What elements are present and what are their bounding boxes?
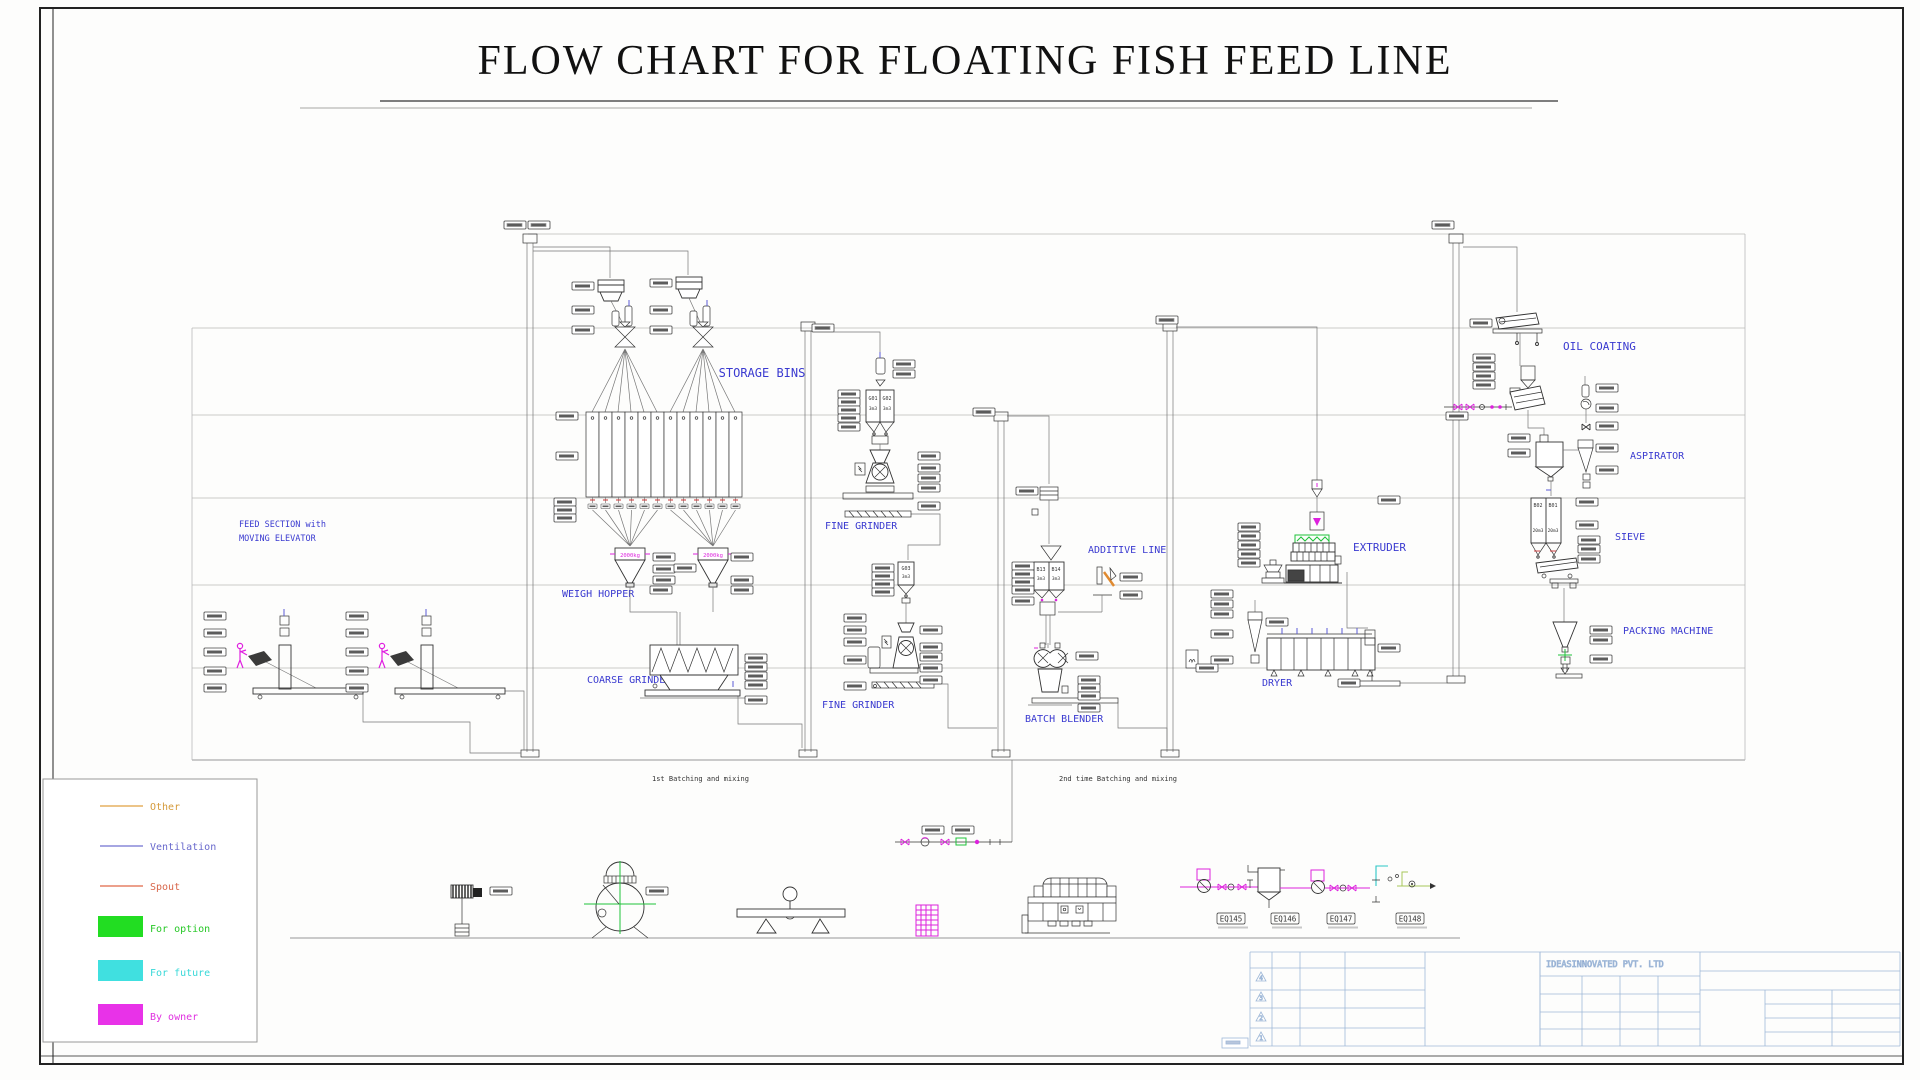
feed-section: FEED SECTION with MOVING ELEVATOR — [204, 520, 505, 699]
grinder-machine-2 — [868, 623, 919, 673]
eq147-label: EQ147 — [1330, 915, 1353, 924]
feed-station-b — [346, 609, 505, 699]
liquid-dosing-piping — [895, 826, 1012, 846]
fine-grinder-lower-section: FINE GRINDER G03 3m3 — [822, 562, 942, 711]
dryer-machine — [1267, 628, 1375, 676]
packing-section: PACKING MACHINE — [1553, 622, 1713, 678]
additive-line-section: ADDITIVE LINE B13 B14 3m3 3m3 — [1012, 487, 1166, 645]
owner-supplied-block — [916, 905, 938, 936]
platform-scale — [737, 887, 845, 933]
dryer-discharge-conveyor — [1358, 670, 1400, 686]
batch-blender-machine — [1028, 643, 1118, 705]
rev-1: 1 — [1259, 1035, 1263, 1042]
dryer-label: DRYER — [1262, 678, 1293, 689]
option-line — [1397, 872, 1436, 889]
bin-b14-label: B14 — [1051, 567, 1060, 573]
vibrating-sieve — [1536, 558, 1578, 588]
extruder-section: EXTRUDER — [1238, 480, 1406, 628]
coarse-grinder-section: COARSE GRINDER — [587, 645, 767, 704]
bin-discharges — [588, 497, 740, 546]
legend-swatch-owner — [98, 1004, 143, 1025]
hand-additive-station — [1058, 567, 1116, 612]
title-block: 4 3 2 1 IDEASINNOVATED PVT. LTD — [1222, 952, 1900, 1048]
rev-3: 3 — [1259, 995, 1263, 1002]
skid-equipment-labels: EQ145 EQ146 EQ147 EQ148 — [1217, 913, 1427, 929]
distribution-fan-lines — [592, 349, 735, 412]
eq148-label: EQ148 — [1399, 915, 1422, 924]
oil-dosing-skid: EQ145 EQ146 EQ147 EQ148 — [1180, 865, 1436, 929]
screw-conveyor-1 — [845, 511, 911, 517]
surge-bin — [1536, 435, 1563, 481]
oil-coater — [1510, 366, 1545, 410]
batch-blender-label: BATCH BLENDER — [1025, 714, 1104, 725]
bin-g01-label: G01 — [868, 396, 877, 402]
legend-label-owner: By owner — [150, 1012, 198, 1023]
eq146-label: EQ146 — [1274, 915, 1297, 924]
oil-dosing-line — [1444, 404, 1512, 420]
page-title: FLOW CHART FOR FLOATING FISH FEED LINE — [478, 38, 1453, 84]
aspirator-assembly — [1578, 376, 1593, 488]
storage-bin-cells — [586, 412, 742, 497]
bin-g03-label: G03 — [901, 566, 910, 572]
packing-machine — [1553, 622, 1582, 678]
legend-swatch-future — [98, 960, 143, 981]
coating-drum-top — [1493, 313, 1542, 346]
intake-hopper — [390, 651, 414, 666]
oil-coating-label: OIL COATING — [1563, 340, 1636, 353]
extruder-hood — [1262, 560, 1284, 583]
fine-grinder-lower-label: FINE GRINDER — [822, 700, 895, 711]
bin-b02-volume: 20m3 — [1533, 528, 1544, 534]
sieve-section: SIEVE B02 B01 20m3 20m3 — [1531, 498, 1645, 622]
title-underline — [300, 101, 1558, 108]
packing-machine-label: PACKING MACHINE — [1623, 626, 1713, 637]
bin-b13-volume: 3m3 — [1037, 576, 1045, 582]
drawing-sheet: FLOW CHART FOR FLOATING FISH FEED LINE — [0, 0, 1920, 1080]
bin-b14-volume: 3m3 — [1052, 576, 1060, 582]
rev-2: 2 — [1259, 1015, 1263, 1022]
storage-bins-section: STORAGE BINS — [554, 277, 805, 546]
weigh-hopper-section: WEIGH HOPPER 2000kg 2000kg — [562, 548, 753, 645]
coarse-grinder-label: COARSE GRINDER — [587, 675, 672, 686]
operator-figure — [379, 643, 389, 668]
dryer-section: DRYER — [1186, 590, 1400, 689]
drum-cleaner-2 — [676, 277, 702, 298]
extruder-feed-cyclone — [1312, 480, 1322, 512]
drum-cleaner-1 — [598, 280, 624, 301]
dryer-cyclone — [1248, 600, 1262, 663]
bin-g02-label: G02 — [882, 396, 891, 402]
batch-blender-section: BATCH BLENDER — [1025, 643, 1118, 725]
bin-b01-label: B01 — [1548, 503, 1557, 509]
extruder-machine — [1284, 512, 1342, 583]
legend-label-other: Other — [150, 802, 180, 813]
right-cells — [1700, 952, 1900, 1046]
bin-g02-volume: 3m3 — [883, 406, 891, 412]
legend-label-spout: Spout — [150, 882, 180, 893]
legend: Other Ventilation Spout For option For f… — [43, 779, 257, 1042]
oil-coating-section: OIL COATING — [1444, 313, 1636, 435]
future-line — [1376, 866, 1388, 886]
round-boiler — [584, 861, 668, 938]
company-cell: IDEASINNOVATED PVT. LTD — [1540, 952, 1700, 1046]
eq145-label: EQ145 — [1220, 915, 1243, 924]
weigh-setpoint-b: 2000kg — [703, 553, 723, 559]
company-name: IDEASINNOVATED PVT. LTD — [1546, 960, 1664, 970]
bin-g01-volume: 3m3 — [869, 406, 877, 412]
revision-table: 4 3 2 1 — [1222, 952, 1425, 1048]
weigh-setpoint-a: 2000kg — [620, 553, 640, 559]
zone-1st-batching: 1st Batching and mixing — [652, 775, 749, 783]
rev-4: 4 — [1259, 975, 1263, 982]
motor-unit — [451, 885, 512, 936]
weigh-discharge-piping — [630, 587, 713, 645]
coarse-grinder-machine — [640, 645, 745, 698]
bottom-machine-row — [451, 861, 1116, 938]
fine-grinder-upper-label: FINE GRINDER — [825, 521, 898, 532]
bin-g03-volume: 3m3 — [902, 574, 910, 580]
feed-section-label-1: FEED SECTION with — [239, 520, 326, 530]
weigh-hopper-label: WEIGH HOPPER — [562, 589, 635, 600]
additive-line-label: ADDITIVE LINE — [1088, 545, 1166, 556]
legend-label-ventilation: Ventilation — [150, 842, 216, 853]
legend-label-future: For future — [150, 968, 210, 979]
feed-station-a — [204, 609, 363, 699]
extruder-label: EXTRUDER — [1353, 541, 1406, 554]
steam-boiler-machine — [1022, 878, 1116, 933]
feed-section-label-2: MOVING ELEVATOR — [239, 534, 317, 544]
zone-2nd-batching: 2nd time Batching and mixing — [1059, 775, 1177, 783]
legend-swatch-option — [98, 916, 143, 937]
bin-b13-label: B13 — [1036, 567, 1045, 573]
filter-cylinder — [876, 352, 885, 386]
intake-hopper — [248, 651, 272, 666]
drawing-cell — [1425, 952, 1540, 1046]
bin-b02-label: B02 — [1533, 503, 1542, 509]
operator-figure — [237, 643, 247, 668]
revision-markers: 4 3 2 1 — [1256, 972, 1266, 1042]
legend-label-option: For option — [150, 924, 210, 935]
flow-chart-canvas: FLOW CHART FOR FLOATING FISH FEED LINE — [0, 0, 1920, 1080]
bin-b01-volume: 20m3 — [1548, 528, 1559, 534]
fine-grinder-upper-section: FINE GRINDER G01 G02 3m3 3m3 — [825, 352, 940, 532]
grinder-machine-1 — [843, 450, 913, 499]
aspirator-label: ASPIRATOR — [1630, 451, 1685, 462]
storage-bins-label: STORAGE BINS — [719, 366, 806, 380]
sieve-label: SIEVE — [1615, 532, 1645, 543]
